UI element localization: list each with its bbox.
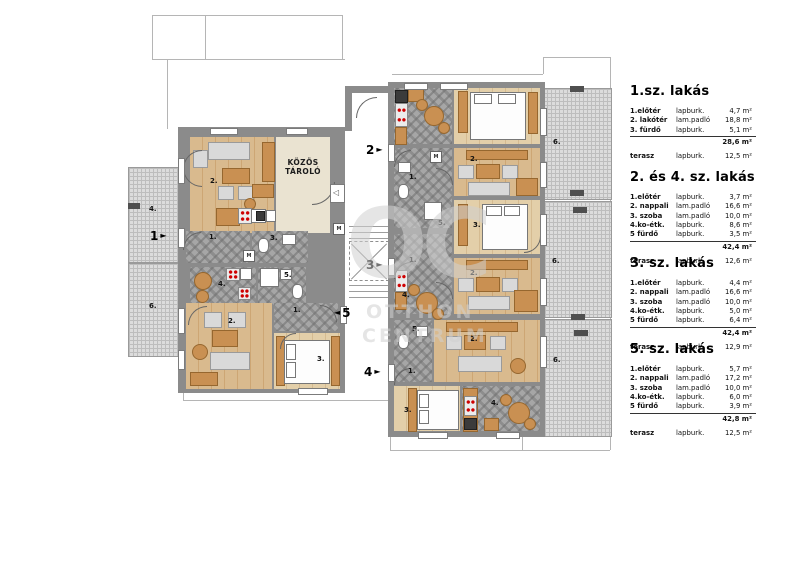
storage-line1: KÖZÖS	[278, 158, 328, 167]
entrance-door-gap	[178, 228, 185, 248]
window	[418, 432, 448, 439]
entrance-marker-1: 1 ►	[150, 229, 167, 243]
desk	[252, 184, 274, 198]
sink-basin	[256, 211, 265, 221]
chimney-stub	[128, 203, 140, 209]
chimney-stub	[570, 86, 584, 92]
roof-label: 6.	[553, 139, 561, 146]
legend-section-1: 1.sz. lakás 1.előtér lapburk. 4,7 m² 2. …	[630, 84, 756, 162]
row-name: 4.ko-étk.	[630, 307, 676, 316]
entrance-marker-4: 4 ►	[364, 365, 381, 379]
headboard	[458, 91, 468, 133]
legend-total-row: 42,4 m²	[630, 241, 756, 252]
row-material: lapburk.	[676, 152, 718, 161]
chair-round	[196, 290, 209, 303]
desk	[514, 290, 538, 312]
window	[298, 388, 328, 395]
common-storage-label: KÖZÖS TÁROLÓ	[278, 158, 328, 177]
legend-section-4: 5. sz. lakás 1.előtér lapburk. 5,7 m² 2.…	[630, 342, 756, 438]
pillow	[286, 362, 296, 378]
window	[178, 308, 185, 334]
roof-terrace	[540, 201, 612, 318]
row-name: 3. szoba	[630, 384, 676, 393]
stove-icon	[238, 208, 252, 224]
wardrobe	[331, 336, 340, 386]
legend-section-2: 2. és 4. sz. lakás 1.előtér lapburk. 3,7…	[630, 170, 756, 266]
room-number: 3.	[473, 222, 481, 229]
legend-row: 3. szoba lam.padló 10,0 m²	[630, 298, 756, 307]
row-name: 3. szoba	[630, 298, 676, 307]
vestibule-wall	[345, 86, 392, 93]
toilet	[398, 184, 409, 199]
roof-outline-line	[342, 15, 343, 59]
roof-outline-line	[392, 74, 543, 75]
row-area: 4,4 m²	[718, 279, 752, 288]
entrance-number: 3	[366, 258, 374, 272]
room-number: 2.	[210, 178, 218, 185]
row-area: 10,0 m²	[718, 384, 752, 393]
counter-unit	[240, 268, 252, 280]
sofa	[210, 352, 250, 370]
wardrobe	[528, 92, 538, 134]
legend-row: 4.ko-étk. lapburk. 8,6 m²	[630, 221, 756, 230]
entrance-marker-2: 2 ►	[366, 143, 383, 157]
row-material: lapburk.	[676, 126, 718, 135]
dining-table-round	[194, 272, 212, 290]
roof-label: 6.	[553, 357, 561, 364]
table	[476, 164, 500, 179]
room-number: 4.	[491, 400, 499, 407]
row-material: lapburk.	[676, 279, 718, 288]
row-area: 18,8 m²	[718, 116, 752, 125]
legend-row: 3. fürdő lapburk. 5,1 m²	[630, 126, 756, 135]
legend-section-3: 3. sz. lakás 1.előtér lapburk. 4,4 m² 2.…	[630, 256, 756, 352]
terrace-outline-line	[183, 400, 390, 401]
chair	[458, 278, 474, 292]
chair	[218, 186, 234, 200]
arrow-right-icon: ►	[160, 232, 166, 240]
stove-icon	[226, 268, 240, 281]
sofa	[468, 182, 510, 196]
row-material: lam.padló	[676, 374, 718, 383]
total-area: 42,8 m²	[718, 415, 752, 424]
legend-row: 1.előtér lapburk. 4,7 m²	[630, 107, 756, 116]
pillow	[474, 94, 492, 104]
chair	[490, 336, 506, 350]
desk	[516, 178, 538, 196]
shower	[260, 268, 279, 287]
window	[178, 158, 185, 184]
legend-terrace-row: terasz lapburk. 12,5 m²	[630, 152, 756, 161]
washing-machine: M	[333, 223, 345, 235]
row-material: lapburk.	[676, 221, 718, 230]
toilet	[398, 334, 409, 349]
side-table-round	[510, 358, 526, 374]
table	[476, 277, 500, 292]
kitchen-sink	[395, 90, 408, 103]
room-number: 1.	[293, 307, 301, 314]
pillow	[419, 394, 429, 408]
toilet	[292, 284, 303, 299]
arrow-right-icon: ►	[376, 146, 382, 154]
legend-total-row: 42,4 m²	[630, 327, 756, 338]
entrance-number: 2	[366, 143, 374, 157]
balcony-door	[540, 162, 547, 188]
legend-total-row: 28,6 m²	[630, 136, 756, 147]
roof-outline-line	[152, 59, 345, 60]
row-name: 3. fürdő	[630, 126, 676, 135]
row-name: terasz	[630, 152, 676, 161]
table	[222, 168, 250, 184]
legend-row: 2. nappali lam.padló 17,2 m²	[630, 374, 756, 383]
sofa	[468, 296, 510, 310]
entrance-marker-3: 3 ►	[366, 258, 383, 272]
roof-label: 6.	[149, 303, 157, 310]
chair-round	[500, 394, 512, 406]
row-material: lam.padló	[676, 384, 718, 393]
sofa	[458, 356, 502, 372]
terrace-outline-line	[390, 437, 391, 450]
row-name: 5 fürdő	[630, 316, 676, 325]
chair	[502, 165, 518, 179]
legend-title: 2. és 4. sz. lakás	[630, 170, 756, 185]
row-area: 5,0 m²	[718, 307, 752, 316]
entrance-marker-5: ◄ 5	[334, 306, 351, 320]
room-number: 5.	[412, 326, 420, 333]
washing-machine: M	[243, 250, 255, 262]
row-area: 8,6 m²	[718, 221, 752, 230]
legend-row: 4.ko-étk. lapburk. 5,0 m²	[630, 307, 756, 316]
balcony-door	[540, 214, 547, 246]
pillow	[486, 206, 502, 216]
chair	[446, 336, 462, 350]
row-name: 3. szoba	[630, 212, 676, 221]
floor-plan-page: 4. 6. 6. 6. 6. 2. 1. 3. 4. 5. 2. 1. 3. K…	[0, 0, 800, 565]
door-marker: ◁	[333, 189, 339, 197]
window	[496, 432, 520, 439]
row-material: lam.padló	[676, 298, 718, 307]
roof-label: 4.	[149, 206, 157, 213]
room-number: 4.	[218, 281, 226, 288]
legend-row: 2. nappali lam.padló 16,6 m²	[630, 202, 756, 211]
legend-row: 1.előtér lapburk. 4,4 m²	[630, 279, 756, 288]
row-material: lapburk.	[676, 365, 718, 374]
door-arc	[356, 97, 377, 118]
row-area: 12,5 m²	[718, 429, 752, 438]
legend-row: 5 fürdő lapburk. 3,9 m²	[630, 402, 756, 411]
wardrobe	[262, 142, 275, 182]
toilet	[258, 238, 269, 253]
terrace-outline-line	[390, 450, 610, 451]
room-number: 2.	[470, 336, 478, 343]
row-area: 5,7 m²	[718, 365, 752, 374]
sofa	[208, 142, 250, 160]
stairs-lower	[349, 283, 389, 298]
terrace-outline-line	[522, 437, 523, 450]
row-area: 16,6 m²	[718, 288, 752, 297]
room-number: 1.	[409, 174, 417, 181]
chimney-stub	[573, 207, 587, 213]
window	[178, 350, 185, 370]
chair-round	[416, 99, 428, 111]
row-material: lam.padló	[676, 288, 718, 297]
row-name: 1.előtér	[630, 279, 676, 288]
row-material: lapburk.	[676, 429, 718, 438]
total-area: 28,6 m²	[718, 138, 752, 147]
kitchen-counter	[216, 208, 240, 226]
row-name: 2. nappali	[630, 374, 676, 383]
storage-line2: TÁROLÓ	[278, 167, 328, 176]
legend-row: 1.előtér lapburk. 5,7 m²	[630, 365, 756, 374]
shower	[424, 202, 442, 220]
room-number: 3.	[317, 356, 325, 363]
legend-row: 3. szoba lam.padló 10,0 m²	[630, 384, 756, 393]
washing-machine: M	[430, 151, 442, 163]
kitchen-sink	[464, 418, 477, 430]
room-number: 4.	[402, 292, 410, 299]
row-area: 6,4 m²	[718, 316, 752, 325]
washbasin	[282, 234, 296, 245]
room-number: 1.	[409, 257, 417, 264]
roof-terrace	[540, 319, 612, 437]
roof-outline-line	[167, 59, 168, 129]
room-number: 2.	[470, 156, 478, 163]
window	[440, 83, 468, 90]
entrance-number: 5	[342, 306, 350, 320]
entrance-number: 1	[150, 229, 158, 243]
table	[212, 330, 238, 347]
room-number: 1.	[209, 234, 217, 241]
chimney-stub	[571, 314, 585, 320]
room-number: 2.	[470, 270, 478, 277]
roof-outline-line	[543, 57, 544, 74]
row-material: lapburk.	[676, 316, 718, 325]
chair-round	[524, 418, 536, 430]
chair	[458, 165, 474, 179]
room-number: 1.	[408, 368, 416, 375]
legend-row: 5 fürdő lapburk. 6,4 m²	[630, 316, 756, 325]
room-number: 3.	[404, 407, 412, 414]
row-material: lapburk.	[676, 107, 718, 116]
total-area: 42,4 m²	[718, 243, 752, 252]
balcony-door	[540, 336, 547, 368]
window	[286, 128, 308, 135]
row-name: 1.előtér	[630, 193, 676, 202]
row-name: 2. nappali	[630, 288, 676, 297]
cabinet	[190, 372, 218, 386]
chimney-stub	[570, 190, 584, 196]
chair-round	[438, 122, 450, 134]
row-name: 2. nappali	[630, 202, 676, 211]
row-area: 3,5 m²	[718, 230, 752, 239]
row-material: lapburk.	[676, 402, 718, 411]
pillow	[419, 410, 429, 424]
row-material: lam.padló	[676, 116, 718, 125]
balcony-door	[540, 278, 547, 306]
row-name: 5 fürdő	[630, 402, 676, 411]
legend-title: 5. sz. lakás	[630, 342, 756, 357]
row-material: lam.padló	[676, 212, 718, 221]
row-name: 4.ko-étk.	[630, 221, 676, 230]
legend-title: 1.sz. lakás	[630, 84, 756, 99]
row-area: 12,5 m²	[718, 152, 752, 161]
row-area: 4,7 m²	[718, 107, 752, 116]
legend-row: 2. nappali lam.padló 16,6 m²	[630, 288, 756, 297]
window	[210, 128, 238, 135]
headboard	[458, 204, 468, 246]
roof-outline-line	[205, 15, 206, 59]
row-area: 3,9 m²	[718, 402, 752, 411]
row-name: 5 fürdő	[630, 230, 676, 239]
legend-total-row: 42,8 m²	[630, 413, 756, 424]
row-material: lapburk.	[676, 393, 718, 402]
row-area: 10,0 m²	[718, 212, 752, 221]
chair-round	[408, 284, 420, 296]
row-name: 1.előtér	[630, 107, 676, 116]
arrow-left-icon: ◄	[334, 309, 340, 317]
cabinet	[484, 418, 499, 431]
row-name: 1.előtér	[630, 365, 676, 374]
row-name: 4.ko-étk.	[630, 393, 676, 402]
roof-outline-line	[543, 57, 610, 58]
roof-outline-line	[152, 15, 153, 59]
window	[404, 83, 428, 90]
row-area: 10,0 m²	[718, 298, 752, 307]
row-material: lam.padló	[676, 202, 718, 211]
total-area: 42,4 m²	[718, 329, 752, 338]
entrance-number: 4	[364, 365, 372, 379]
stairs-upper	[349, 222, 389, 239]
legend-title: 3. sz. lakás	[630, 256, 756, 271]
balcony-door	[540, 108, 547, 136]
entrance-door-gap	[388, 258, 395, 276]
legend-row: 4.ko-étk. lapburk. 6,0 m²	[630, 393, 756, 402]
entrance-door-gap	[388, 144, 395, 162]
row-material: lapburk.	[676, 193, 718, 202]
legend-row: 2. lakótér lam.padló 18,8 m²	[630, 116, 756, 125]
row-name: 2. lakótér	[630, 116, 676, 125]
stove-icon	[238, 287, 251, 300]
pillow	[504, 206, 520, 216]
room-number: 5.	[438, 220, 446, 227]
stove-icon	[395, 103, 408, 127]
row-area: 3,7 m²	[718, 193, 752, 202]
row-area: 16,6 m²	[718, 202, 752, 211]
sideboard	[446, 322, 518, 332]
arrow-right-icon: ►	[376, 261, 382, 269]
legend-row: 3. szoba lam.padló 10,0 m²	[630, 212, 756, 221]
vestibule-wall	[345, 86, 352, 131]
row-name: terasz	[630, 429, 676, 438]
row-area: 5,1 m²	[718, 126, 752, 135]
entrance-door-gap	[388, 364, 395, 382]
legend-row: 5 fürdő lapburk. 3,5 m²	[630, 230, 756, 239]
pillow	[498, 94, 516, 104]
roof-label: 6.	[552, 258, 560, 265]
counter-unit	[266, 210, 276, 222]
row-area: 6,0 m²	[718, 393, 752, 402]
stove-icon	[464, 396, 477, 416]
row-area: 17,2 m²	[718, 374, 752, 383]
room-number: 5.	[284, 272, 292, 279]
side-table-round	[192, 344, 208, 360]
arrow-right-icon: ►	[374, 368, 380, 376]
roof-outline-line	[152, 15, 342, 16]
room-number: 3.	[270, 235, 278, 242]
room-number: 2.	[228, 318, 236, 325]
chair-round	[432, 308, 444, 320]
legend-terrace-row: terasz lapburk. 12,5 m²	[630, 429, 756, 438]
chimney-stub	[574, 330, 588, 336]
row-material: lapburk.	[676, 230, 718, 239]
row-material: lapburk.	[676, 307, 718, 316]
kitchen-counter	[395, 127, 407, 145]
legend-row: 1.előtér lapburk. 3,7 m²	[630, 193, 756, 202]
